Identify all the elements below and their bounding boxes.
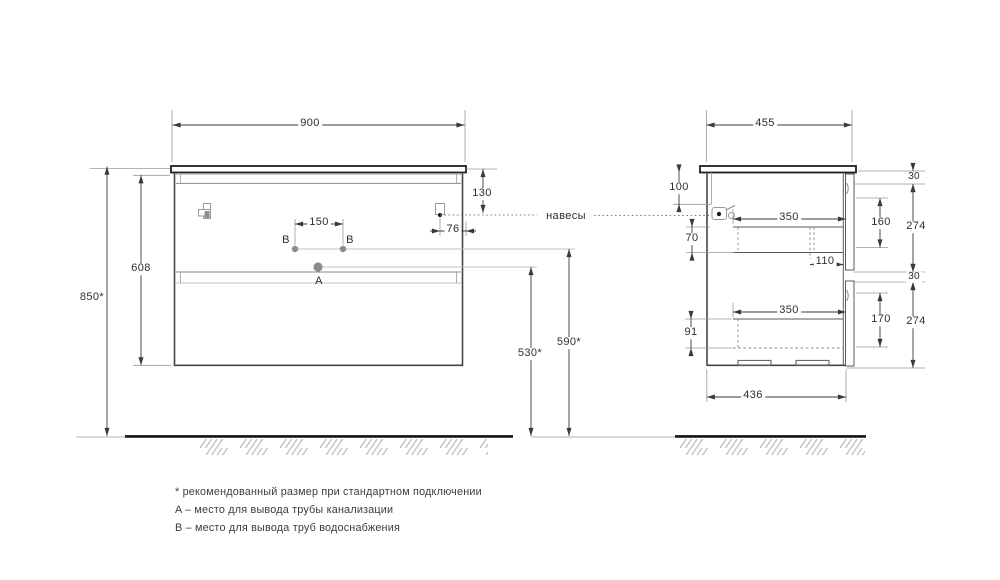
marker-supply-right: B — [345, 235, 355, 247]
dim-hinge-from-edge: 76 — [444, 224, 461, 236]
dim-drawer-height-bottom: 170 — [869, 314, 893, 326]
wall-hanger-icon-side — [712, 206, 735, 220]
dim-front-width: 900 — [298, 118, 322, 130]
drawer-front-bottom — [846, 281, 855, 366]
dim-drawer-side-bottom: 91 — [682, 327, 699, 339]
footnote-drain: A – место для вывода трубы канализации — [175, 505, 393, 516]
side-countertop — [700, 166, 856, 173]
marker-supply-left: B — [281, 235, 291, 247]
dim-hinge-from-top: 130 — [470, 188, 494, 200]
dim-drawer-width-top: 350 — [777, 212, 801, 224]
dim-base-depth: 436 — [741, 390, 765, 402]
vanity-dimension-drawing — [0, 0, 1000, 580]
dim-supply-spacing: 150 — [307, 217, 331, 229]
wall-hanger-icon-left — [199, 204, 211, 219]
ground-line — [76, 436, 866, 455]
dim-back-clearance: 110 — [814, 256, 837, 268]
drawer-box-bottom — [733, 319, 843, 348]
footnote-supply: B – место для вывода труб водоснабжения — [175, 523, 400, 534]
dim-reveal-mid: 30 — [906, 272, 922, 283]
drawer-front-top — [846, 174, 855, 270]
dim-top-clearance: 70 — [683, 233, 700, 245]
drain-hole-marker — [313, 262, 322, 271]
dim-back-panel-top: 100 — [667, 182, 691, 194]
footnote-asterisk: * рекомендованный размер при стандартном… — [175, 487, 482, 498]
dim-overall-height: 850* — [78, 292, 106, 304]
dim-cabinet-height: 608 — [129, 263, 153, 275]
dim-reveal-top: 30 — [906, 172, 922, 183]
dim-drawer-height-top: 160 — [869, 217, 893, 229]
supply-hole-marker-left — [292, 246, 298, 252]
front-countertop — [171, 166, 466, 173]
dim-front-height-top: 274 — [904, 221, 928, 233]
dim-supply-from-floor: 590* — [555, 337, 583, 349]
dim-depth: 455 — [753, 118, 777, 130]
front-view — [171, 166, 575, 366]
dim-front-height-bottom: 274 — [904, 316, 928, 328]
marker-drain: A — [314, 276, 324, 288]
technical-drawing-page: 900 850* 608 130 76 150 530* 590* B B A … — [0, 0, 1000, 580]
dimension-lines — [90, 110, 925, 436]
hangers-label: навесы — [544, 211, 588, 223]
dim-drawer-width-bottom: 350 — [777, 305, 801, 317]
drawer-box-top — [733, 227, 843, 259]
dim-drain-from-floor: 530* — [516, 348, 544, 360]
